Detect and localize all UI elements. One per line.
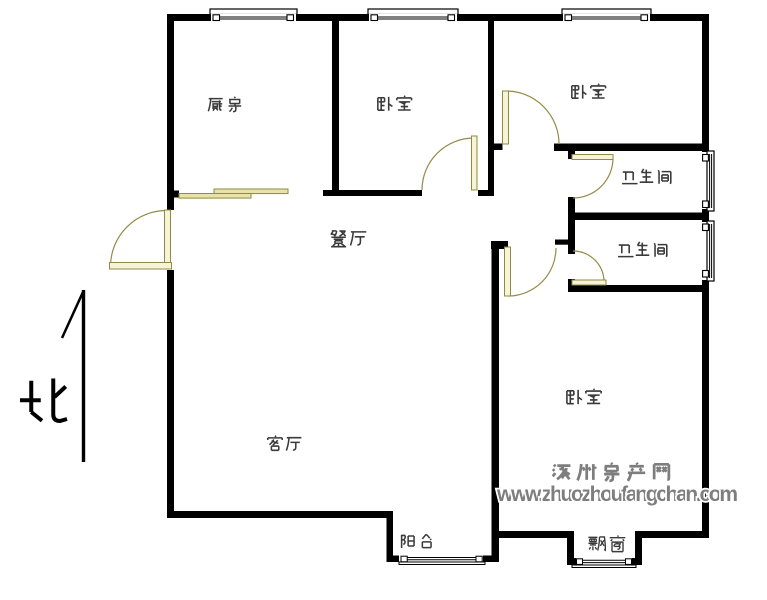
svg-text:www.zhuozhoufangchan.com: www.zhuozhoufangchan.com — [496, 483, 738, 506]
